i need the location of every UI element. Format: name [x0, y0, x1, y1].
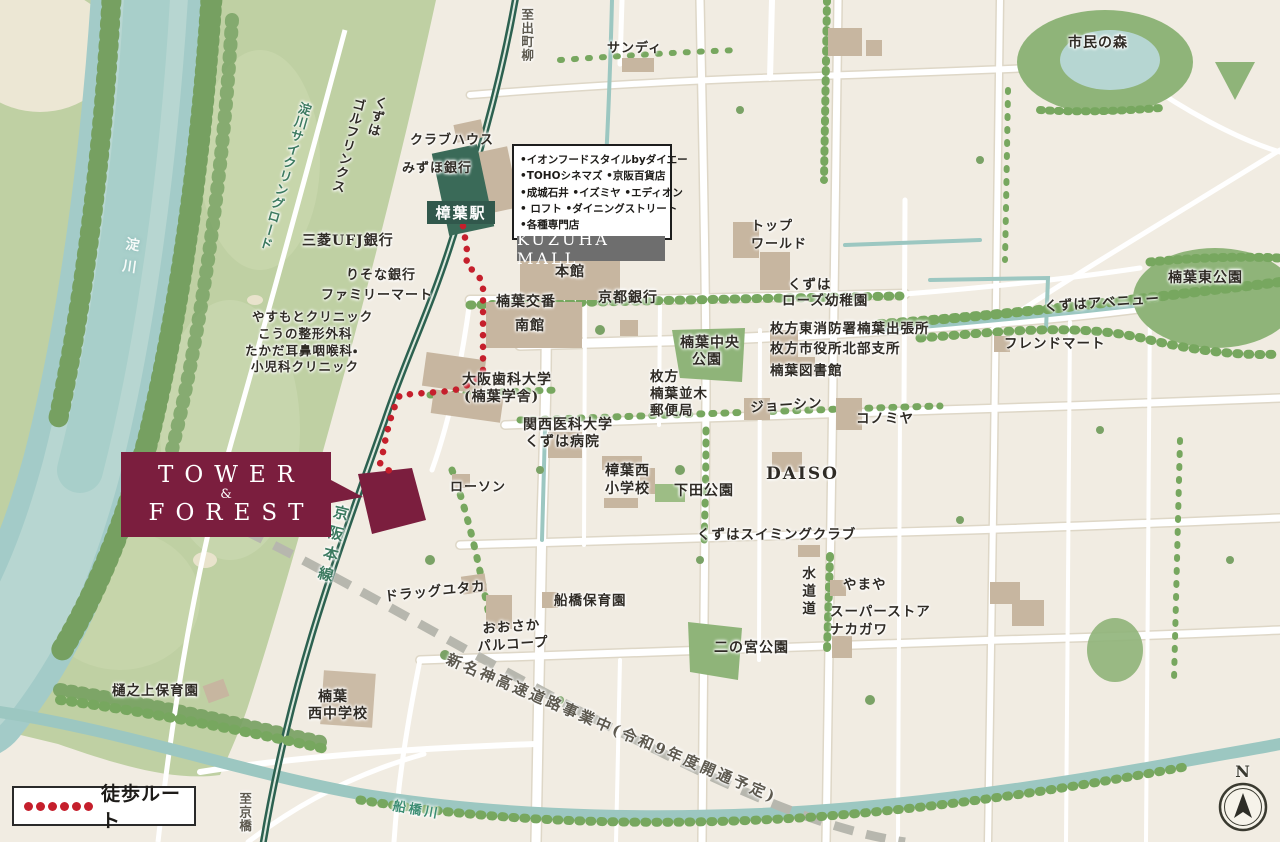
- station-name: 樟葉駅: [435, 202, 486, 223]
- kansai-medical-univ-2-label: くずは病院: [525, 435, 600, 450]
- osaka-dental-univ-2-label: (楠葉学舎): [464, 390, 539, 405]
- super-store-nakagawa-1-label: スーパーストア: [830, 605, 931, 619]
- mall-minamikan-label: 南館: [515, 319, 545, 334]
- tenant-line: •TOHOシネマズ •京阪百貨店: [520, 168, 664, 184]
- top-world-2-label: ワールド: [751, 238, 807, 252]
- kuzuha-nishi-elementary-1-label: 樟葉西: [605, 464, 650, 479]
- osaka-palcoop-1-label: おおさか: [482, 618, 541, 636]
- yasumoto-clinic-label: やすもとクリニック: [252, 310, 373, 323]
- kyoto-bank-label: 京都銀行: [598, 291, 658, 306]
- compass-icon: [1217, 781, 1269, 833]
- tenant-line: • ロフト •ダイニングストリート: [520, 201, 664, 217]
- kuzuha-library-label: 楠葉図書館: [770, 364, 843, 378]
- mitsubishi-ufj-bank-label: 三菱UFJ銀行: [302, 234, 394, 249]
- walking-route-label: 徒歩ルート: [101, 779, 184, 833]
- kuzuha-rose-kindergarten-2-label: ローズ幼稚園: [782, 294, 868, 308]
- station-label-box: 樟葉駅: [427, 201, 495, 224]
- route-dot: [84, 802, 93, 811]
- kuzuha-higashi-park-label: 楠葉東公園: [1168, 271, 1243, 286]
- site-name-line2: FOREST: [137, 502, 314, 525]
- osaka-dental-univ-1-label: 大阪歯科大学: [462, 373, 552, 388]
- kuzuha-nishi-junior-high-1-label: 楠葉: [318, 690, 348, 705]
- walking-route-path: [380, 226, 483, 472]
- mall-name: KUZUHA MALL: [517, 230, 665, 268]
- kuzuha-swimming-club-label: くずはスイミングクラブ: [697, 528, 856, 542]
- route-dot: [24, 802, 33, 811]
- super-store-nakagawa-2-label: ナカガワ: [830, 623, 888, 637]
- map-artwork: [0, 0, 1280, 842]
- site-polygon: [358, 468, 426, 534]
- top-world-1-label: トップ: [751, 220, 793, 234]
- friend-mart-label: フレンドマート: [1004, 337, 1106, 351]
- shimin-no-mori-label: 市民の森: [1068, 36, 1128, 51]
- lawson-label: ローソン: [450, 481, 506, 495]
- yamaya-label: やまや: [843, 578, 887, 592]
- kono-seikei-label: こうの整形外科: [258, 327, 353, 340]
- shimoda-park-label: 下田公園: [674, 484, 734, 499]
- site-name-box: TOWER & FOREST: [121, 452, 331, 537]
- kuzuha-rose-kindergarten-1-label: くずは: [788, 278, 832, 292]
- funabashi-nursery-label: 船橋保育園: [554, 594, 627, 608]
- daiso-label: DAISO: [766, 466, 839, 484]
- map: 淀川サイクリングロード淀川至出町柳サンディ市民の森くずはゴルフリンクスクラブハウ…: [0, 0, 1280, 842]
- kansai-medical-univ-1-label: 関西医科大学: [523, 418, 613, 433]
- kuzuha-kouban-label: 楠葉交番: [496, 295, 556, 310]
- kuzuha-chuo-park-1-label: 楠葉中央: [680, 336, 740, 351]
- to-demachiyanagi-label: 至出町柳: [520, 8, 533, 62]
- walking-route-legend: 徒歩ルート: [12, 786, 196, 826]
- takada-jibika-1-label: たかだ耳鼻咽喉科・: [245, 344, 358, 357]
- route-dot: [60, 802, 69, 811]
- sandy-label: サンディ: [607, 42, 662, 56]
- to-kyobashi-label: 至京橋: [238, 792, 251, 833]
- compass: N: [1212, 762, 1274, 837]
- mall-tenant-list: •イオンフードスタイルbyダイエー•TOHOシネマズ •京阪百貨店•成城石井 •…: [512, 144, 672, 240]
- kuzuha-nishi-junior-high-2-label: 西中学校: [308, 707, 368, 722]
- kuzuha-nishi-elementary-2-label: 小学校: [605, 482, 650, 497]
- konomiya-label: コノミヤ: [856, 412, 914, 426]
- mizuho-bank-label: みずほ銀行: [402, 162, 472, 176]
- tenant-line: •成城石井 •イズミヤ •エディオン: [520, 185, 664, 201]
- suido-michi-label: 水道道: [800, 566, 814, 619]
- hirakata-city-branch-label: 枚方市役所北部支所: [770, 342, 901, 356]
- kuzuha-chuo-park-2-label: 公園: [692, 353, 722, 368]
- clubhouse-label: クラブハウス: [410, 134, 494, 148]
- route-dot: [72, 802, 81, 811]
- namiki-post-office-1-label: 枚方: [650, 370, 679, 384]
- takada-jibika-2-label: 小児科クリニック: [251, 360, 359, 373]
- hirakata-fire-station-label: 枚方東消防署楠葉出張所: [770, 322, 930, 336]
- namiki-post-office-3-label: 郵便局: [650, 404, 694, 418]
- tenant-line: •イオンフードスタイルbyダイエー: [520, 152, 664, 168]
- compass-north-label: N: [1212, 762, 1274, 781]
- route-dot: [36, 802, 45, 811]
- route-dot: [48, 802, 57, 811]
- namiki-post-office-2-label: 楠葉並木: [650, 387, 708, 401]
- risona-bank-label: りそな銀行: [346, 269, 416, 283]
- hinoue-nursery-label: 樋之上保育園: [112, 684, 199, 698]
- site-name-line1: TOWER: [147, 464, 305, 487]
- walking-route-dots: [24, 802, 93, 811]
- ninomiya-park-label: 二の宮公園: [714, 641, 789, 656]
- family-mart-label: ファミリーマート: [321, 289, 433, 303]
- kuzuha-mall-label-box: KUZUHA MALL: [517, 236, 665, 261]
